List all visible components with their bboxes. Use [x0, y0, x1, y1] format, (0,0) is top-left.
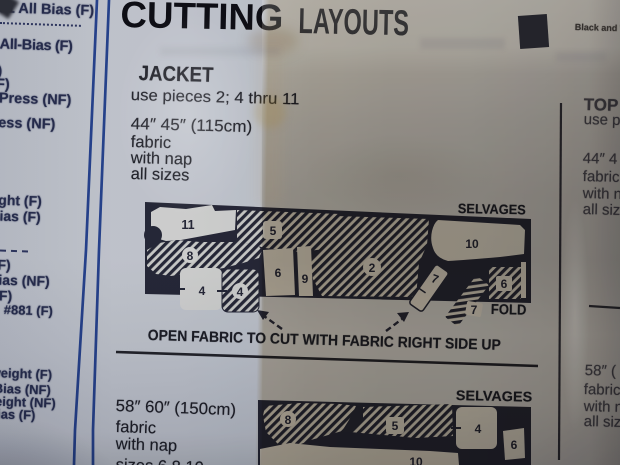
svg-text:5: 5 [392, 419, 399, 433]
svg-text:7: 7 [471, 303, 478, 317]
svg-text:4: 4 [237, 285, 244, 299]
svg-text:11: 11 [181, 218, 194, 232]
svg-text:4: 4 [199, 284, 206, 298]
svg-text:9: 9 [302, 272, 309, 286]
svg-text:4: 4 [475, 422, 482, 436]
svg-text:8: 8 [187, 249, 194, 263]
svg-text:5: 5 [270, 224, 277, 238]
svg-text:6: 6 [511, 438, 518, 452]
svg-text:2: 2 [369, 261, 376, 275]
svg-text:8: 8 [285, 413, 292, 427]
svg-text:10: 10 [465, 237, 479, 251]
svg-text:6: 6 [501, 277, 508, 291]
svg-text:6: 6 [275, 266, 282, 280]
svg-text:10: 10 [409, 455, 423, 465]
